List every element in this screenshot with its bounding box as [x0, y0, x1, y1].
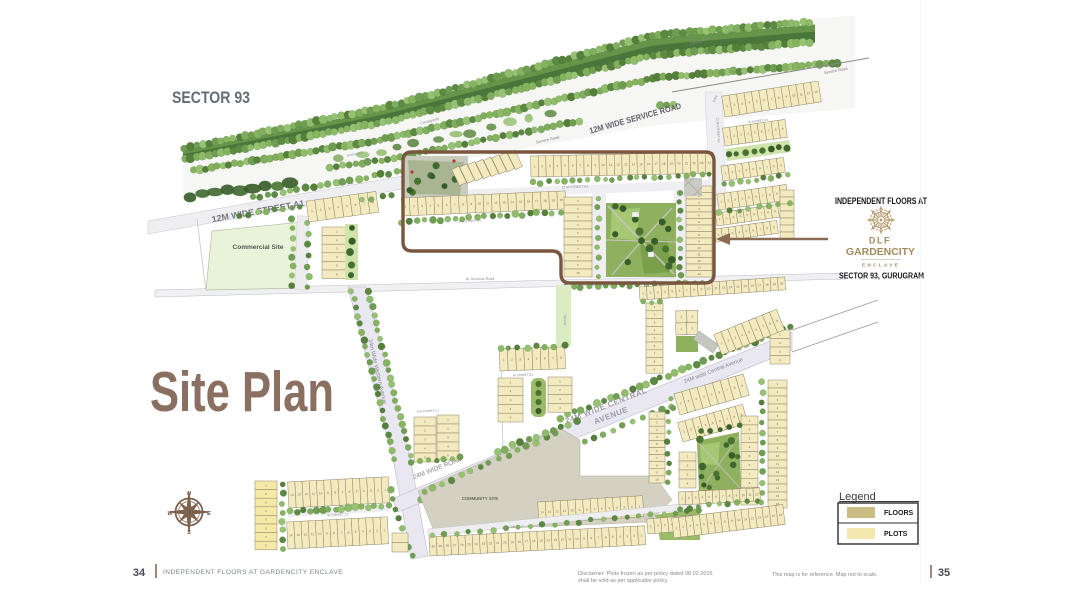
svg-text:12: 12: [697, 259, 701, 263]
svg-text:10: 10: [741, 493, 745, 497]
svg-text:22: 22: [692, 161, 696, 165]
svg-text:12: 12: [776, 470, 780, 474]
svg-text:12: 12: [494, 201, 498, 205]
svg-text:20: 20: [677, 161, 681, 165]
svg-text:12: 12: [305, 492, 309, 496]
svg-text:17: 17: [654, 162, 658, 166]
svg-text:11: 11: [563, 509, 567, 513]
svg-text:13: 13: [297, 492, 301, 496]
svg-text:ENCLAVE: ENCLAVE: [862, 263, 900, 269]
svg-text:35: 35: [938, 567, 950, 579]
svg-text:28: 28: [446, 543, 450, 547]
svg-text:16: 16: [751, 283, 755, 287]
svg-text:14: 14: [290, 493, 294, 497]
svg-text:10: 10: [697, 246, 701, 250]
svg-text:34: 34: [133, 567, 146, 579]
svg-text:24: 24: [708, 161, 712, 165]
svg-text:18: 18: [662, 162, 666, 166]
svg-text:12: 12: [303, 532, 307, 536]
svg-text:10: 10: [319, 491, 323, 495]
svg-text:11: 11: [486, 201, 490, 205]
svg-text:18: 18: [765, 282, 769, 286]
svg-text:12: 12: [555, 509, 559, 513]
svg-text:10: 10: [601, 163, 605, 167]
svg-text:27: 27: [453, 543, 457, 547]
svg-text:10: 10: [318, 532, 322, 536]
svg-text:14: 14: [289, 533, 293, 537]
svg-text:30: 30: [431, 544, 435, 548]
svg-text:15: 15: [639, 162, 643, 166]
svg-text:11: 11: [697, 252, 700, 256]
svg-text:20: 20: [780, 281, 784, 285]
svg-text:12: 12: [755, 492, 759, 496]
svg-text:12: 12: [561, 537, 565, 541]
svg-text:29: 29: [439, 544, 443, 548]
svg-text:15: 15: [776, 494, 780, 498]
svg-text:11: 11: [311, 532, 315, 536]
svg-text:12: 12: [721, 286, 725, 290]
svg-text:E: E: [207, 511, 211, 517]
svg-text:17: 17: [758, 283, 762, 287]
svg-text:14: 14: [632, 162, 636, 166]
svg-text:DLF: DLF: [869, 236, 891, 246]
svg-text:14: 14: [736, 285, 740, 289]
svg-text:shall be sold as per applicabl: shall be sold as per applicable policy.: [578, 578, 669, 584]
svg-text:10: 10: [655, 477, 659, 481]
svg-text:25: 25: [467, 542, 471, 546]
svg-text:18: 18: [518, 540, 522, 544]
svg-text:INDEPENDENT FLOORS AT GARDENCI: INDEPENDENT FLOORS AT GARDENCITY ENCLAVE: [163, 569, 343, 576]
svg-text:Service: Service: [563, 315, 567, 326]
svg-text:22: 22: [489, 541, 493, 545]
svg-text:17: 17: [525, 539, 529, 543]
svg-text:SECTOR 93: SECTOR 93: [172, 88, 250, 107]
svg-text:16: 16: [647, 162, 651, 166]
svg-text:23: 23: [482, 542, 486, 546]
svg-text:11: 11: [748, 493, 752, 497]
svg-text:13: 13: [729, 285, 733, 289]
svg-text:COMMUNITY SITE: COMMUNITY SITE: [462, 496, 498, 501]
svg-text:10: 10: [570, 508, 574, 512]
svg-text:INDEPENDENT FLOORS AT: INDEPENDENT FLOORS AT: [835, 196, 927, 206]
svg-text:10: 10: [478, 202, 482, 206]
svg-text:PLOTS: PLOTS: [884, 531, 908, 538]
svg-text:13: 13: [554, 538, 558, 542]
svg-text:15: 15: [539, 539, 543, 543]
svg-text:16: 16: [532, 539, 536, 543]
svg-text:19: 19: [772, 282, 776, 286]
svg-text:15: 15: [743, 284, 747, 288]
svg-text:24: 24: [474, 542, 478, 546]
svg-text:11: 11: [714, 286, 718, 290]
svg-text:13: 13: [697, 265, 701, 269]
svg-text:15: 15: [519, 200, 523, 204]
svg-text:This map is for reference. Map: This map is for reference. Map not to sc…: [772, 572, 878, 578]
svg-text:18: 18: [543, 199, 547, 203]
svg-text:13: 13: [624, 162, 628, 166]
svg-text:11: 11: [776, 462, 779, 466]
svg-text:14: 14: [546, 538, 550, 542]
svg-text:19: 19: [551, 198, 555, 202]
svg-text:16: 16: [527, 199, 531, 203]
svg-text:Commercial Site: Commercial Site: [233, 244, 284, 251]
svg-text:17: 17: [535, 199, 539, 203]
svg-text:11: 11: [568, 537, 572, 541]
svg-text:21: 21: [685, 161, 689, 165]
svg-text:11: 11: [312, 492, 316, 496]
svg-text:S: S: [187, 530, 191, 536]
svg-text:10: 10: [707, 287, 711, 291]
svg-text:13: 13: [548, 510, 552, 514]
svg-text:13: 13: [776, 478, 780, 482]
svg-text:10: 10: [776, 454, 780, 458]
svg-text:20: 20: [560, 198, 564, 202]
svg-text:11: 11: [609, 163, 613, 167]
svg-text:23: 23: [700, 161, 704, 165]
svg-text:W. Revenue Road: W. Revenue Road: [466, 277, 495, 281]
svg-text:13: 13: [502, 200, 506, 204]
svg-text:Site Plan: Site Plan: [150, 360, 334, 424]
svg-text:14: 14: [776, 486, 780, 490]
svg-text:12: 12: [616, 163, 620, 167]
svg-text:19: 19: [670, 162, 674, 166]
svg-text:FLOORS: FLOORS: [884, 510, 913, 517]
svg-text:19: 19: [510, 540, 514, 544]
svg-text:21: 21: [496, 541, 500, 545]
svg-text:14: 14: [697, 272, 701, 276]
svg-text:SECTOR 93, GURUGRAM: SECTOR 93, GURUGRAM: [839, 271, 924, 281]
svg-text:10: 10: [576, 271, 580, 275]
svg-text:20: 20: [503, 540, 507, 544]
svg-text:W: W: [167, 511, 173, 517]
svg-text:13: 13: [296, 533, 300, 537]
svg-text:14: 14: [510, 200, 514, 204]
svg-text:GARDENCITY: GARDENCITY: [846, 247, 915, 258]
svg-text:14: 14: [540, 510, 544, 514]
svg-text:26: 26: [460, 543, 464, 547]
svg-text:W STREET D1: W STREET D1: [513, 373, 534, 378]
svg-text:Disclaimer: Plots frozen as pe: Disclaimer: Plots frozen as per policy d…: [578, 571, 713, 577]
svg-text:10: 10: [575, 537, 579, 541]
